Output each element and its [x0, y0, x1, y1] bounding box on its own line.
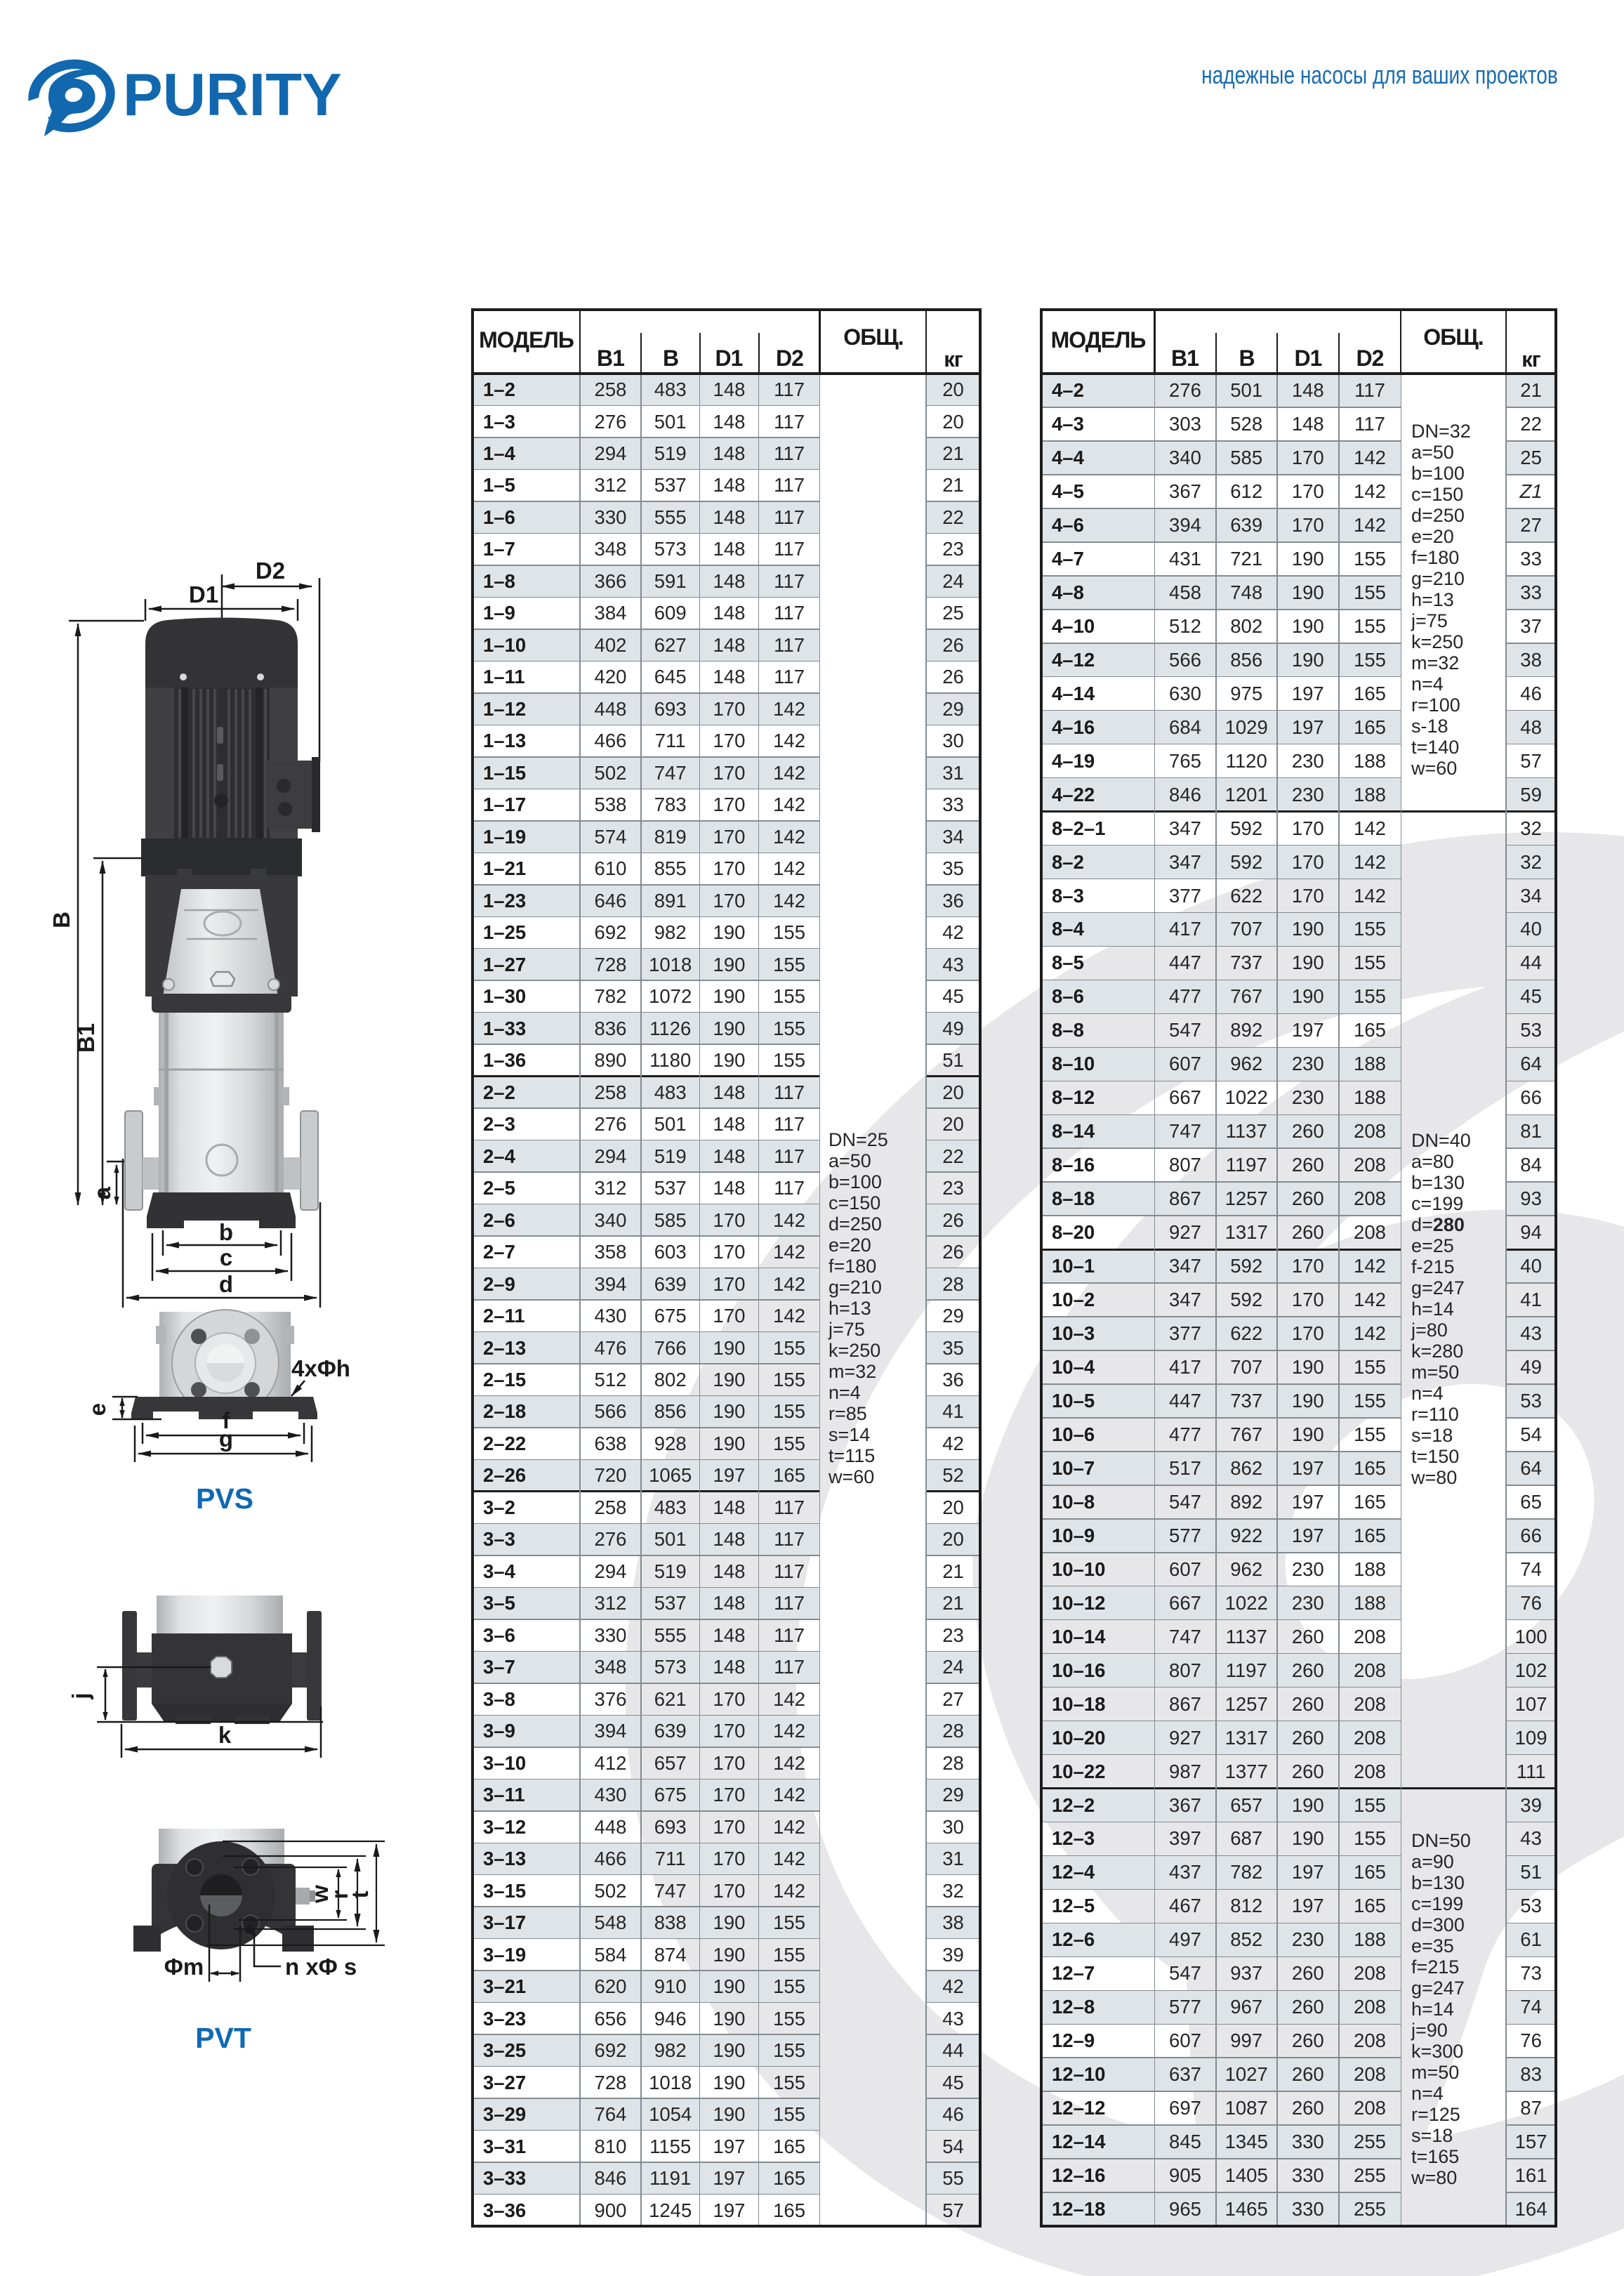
svg-text:d: d	[219, 1271, 233, 1297]
svg-text:j: j	[67, 1692, 93, 1699]
svg-text:k: k	[218, 1722, 232, 1748]
svg-text:c: c	[220, 1244, 232, 1270]
svg-text:Φm: Φm	[164, 1954, 204, 1980]
svg-text:B1: B1	[73, 1023, 99, 1053]
svg-text:t: t	[347, 1891, 373, 1899]
svg-text:a: a	[89, 1186, 115, 1199]
svg-text:b: b	[219, 1219, 233, 1245]
svg-text:PURITY: PURITY	[123, 62, 342, 129]
svg-text:B: B	[48, 912, 74, 928]
svg-text:D2: D2	[256, 558, 285, 584]
svg-text:PVS: PVS	[196, 1482, 253, 1515]
svg-text:e: e	[84, 1403, 110, 1416]
svg-text:n xΦ s: n xΦ s	[285, 1954, 357, 1980]
svg-text:PVT: PVT	[195, 2022, 251, 2054]
svg-text:D1: D1	[189, 581, 218, 607]
svg-text:4xΦh: 4xΦh	[291, 1355, 350, 1381]
svg-text:g: g	[219, 1426, 233, 1452]
